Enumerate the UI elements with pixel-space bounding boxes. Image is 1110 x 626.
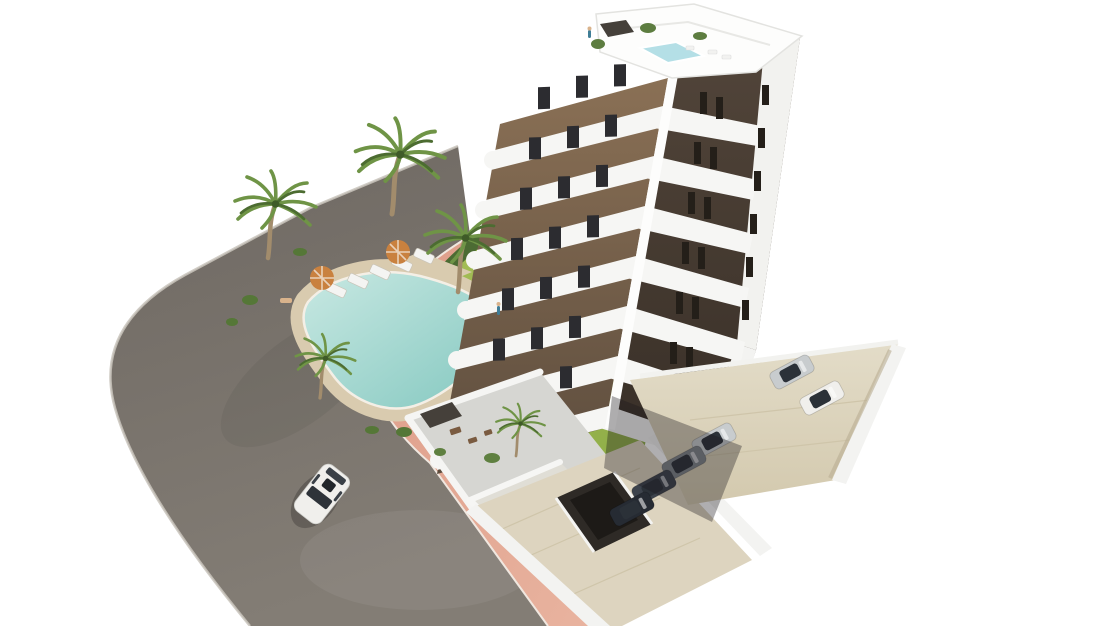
person-sunbathing	[280, 298, 292, 303]
person	[588, 27, 592, 39]
render-canvas	[0, 0, 1110, 626]
parasol	[386, 240, 410, 264]
person	[497, 302, 501, 315]
parasol	[310, 266, 334, 290]
